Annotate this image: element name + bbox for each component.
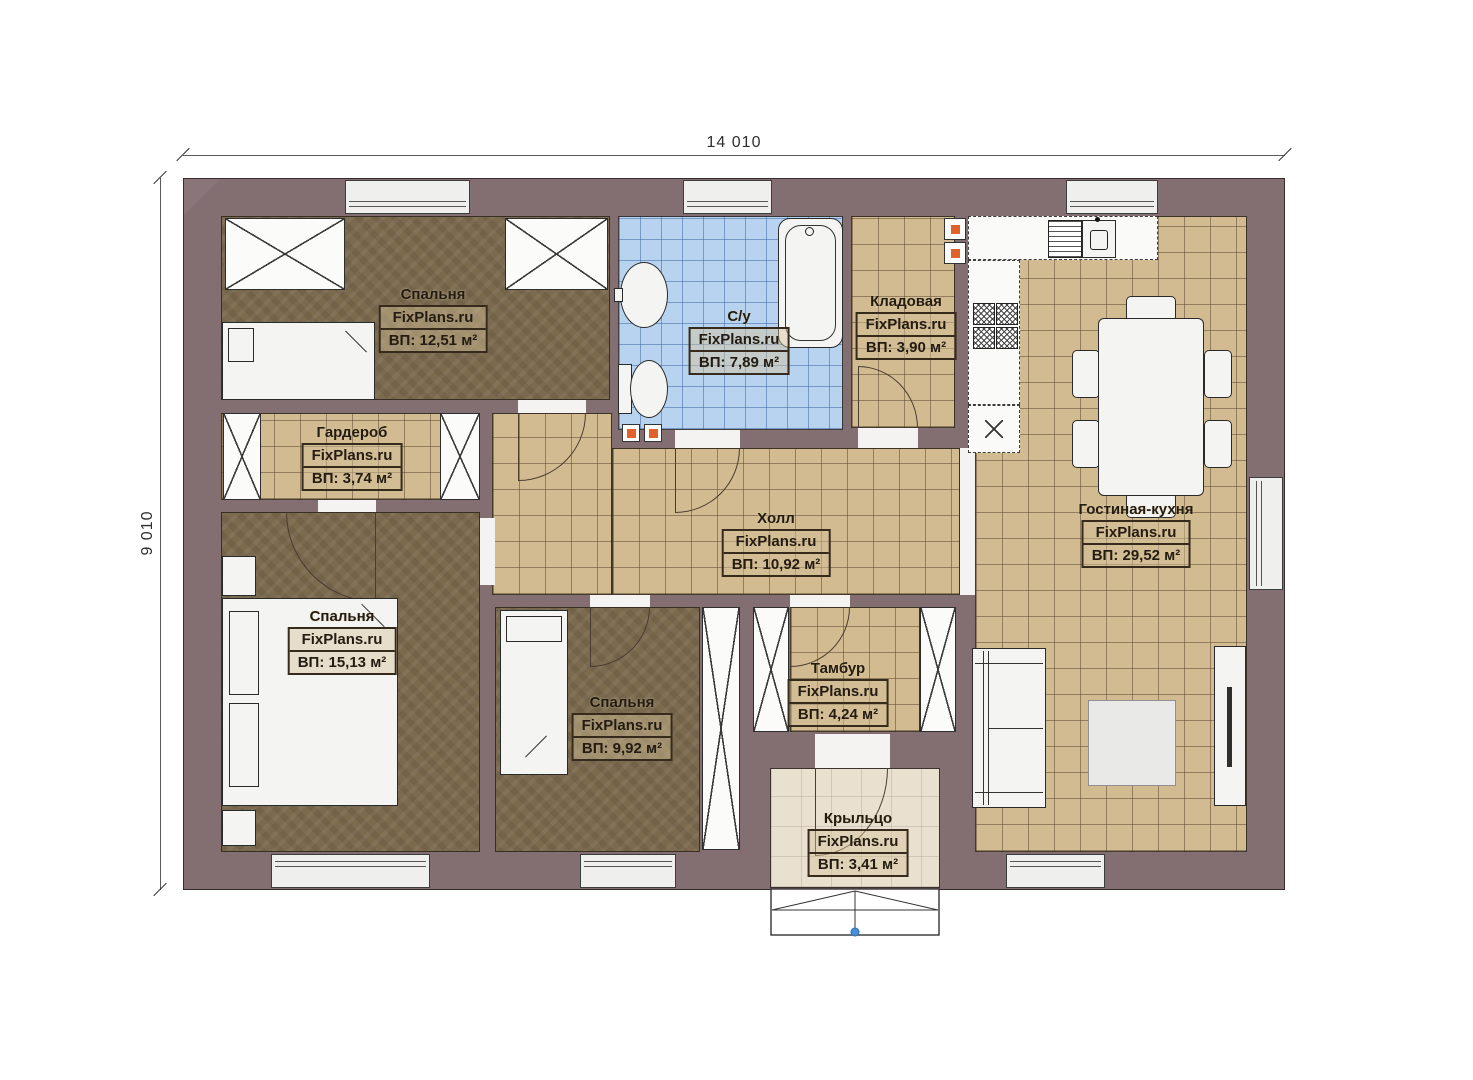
window-sash (1010, 861, 1101, 867)
room-area: ВП: 9,92 м² (574, 738, 671, 759)
room-info-box: FixPlans.ru ВП: 12,51 м² (379, 305, 488, 353)
room-name: Спальня (401, 286, 466, 304)
faucet-icon (1095, 217, 1100, 222)
watermark: FixPlans.ru (810, 831, 907, 854)
bathtub-inner (785, 225, 836, 341)
room-name: Спальня (590, 694, 655, 712)
sofa-cushion-line (989, 728, 1043, 729)
room-info-box: FixPlans.ru ВП: 3,74 м² (302, 443, 403, 491)
window (271, 854, 430, 888)
room-info-box: FixPlans.ru ВП: 4,24 м² (788, 679, 889, 727)
room-area: ВП: 10,92 м² (724, 554, 829, 575)
floor-heating-icon (644, 424, 662, 442)
passage-threshold (960, 448, 975, 595)
sink-bowl (1090, 230, 1108, 250)
wardrobe-symbol (223, 413, 261, 500)
tv-icon (1227, 687, 1232, 767)
chair-symbol (1204, 420, 1232, 468)
rug-symbol (1088, 700, 1176, 786)
step-marker-dot (851, 928, 859, 936)
room-label-hall: Холл FixPlans.ru ВП: 10,92 м² (722, 510, 831, 577)
wardrobe-symbol (505, 218, 608, 290)
stove-burner-icon (996, 327, 1018, 349)
room-name: Холл (757, 510, 795, 528)
door-opening (675, 430, 740, 448)
pillow-symbol (228, 328, 254, 362)
room-info-box: FixPlans.ru ВП: 7,89 м² (689, 327, 790, 375)
single-bed-symbol (222, 322, 375, 400)
sink-symbol (620, 262, 668, 328)
nightstand-symbol (222, 810, 256, 846)
window (1066, 180, 1158, 214)
tv-stand-symbol (1214, 646, 1246, 806)
chair-symbol (1204, 350, 1232, 398)
room-label-wardrobe-room: Гардероб FixPlans.ru ВП: 3,74 м² (302, 424, 403, 491)
floor-plan-canvas: 14 010 9 010 (0, 0, 1473, 1080)
room-area: ВП: 15,13 м² (290, 652, 395, 673)
window (1006, 854, 1105, 888)
watermark: FixPlans.ru (304, 445, 401, 468)
single-bed-symbol (500, 610, 568, 775)
drain-icon (805, 227, 814, 236)
kitchen-counter (968, 260, 1020, 405)
pillow-symbol (229, 703, 259, 787)
stove-burner-icon (973, 303, 995, 325)
door-opening (518, 400, 586, 413)
appliance-symbol (968, 405, 1020, 453)
watermark: FixPlans.ru (790, 681, 887, 704)
window (1249, 477, 1283, 590)
chair-symbol (1072, 350, 1100, 398)
window (580, 854, 676, 888)
window-sash (687, 201, 768, 207)
boiler-icon (944, 242, 966, 264)
room-info-box: FixPlans.ru ВП: 29,52 м² (1082, 520, 1191, 568)
stove-burner-icon (996, 303, 1018, 325)
watermark: FixPlans.ru (574, 715, 671, 738)
door-opening (318, 500, 376, 512)
watermark: FixPlans.ru (381, 307, 486, 330)
dimension-width-label: 14 010 (684, 134, 784, 152)
faucet-icon (614, 288, 623, 302)
room-area: ВП: 4,24 м² (790, 704, 887, 725)
dining-table-symbol (1098, 318, 1204, 496)
room-name: Крыльцо (824, 810, 892, 828)
sofa-symbol (972, 648, 1046, 808)
pillow-symbol (506, 616, 562, 642)
wardrobe-symbol (225, 218, 345, 290)
door-opening (858, 428, 918, 448)
porch-steps (770, 888, 940, 938)
blanket-fold (345, 331, 367, 353)
window-sash (1256, 481, 1262, 586)
room-label-bathroom: С/у FixPlans.ru ВП: 7,89 м² (689, 308, 790, 375)
entry-door-opening (815, 734, 890, 768)
window (683, 180, 772, 214)
watermark: FixPlans.ru (858, 314, 955, 337)
room-name: Гостиная-кухня (1079, 501, 1194, 519)
wardrobe-symbol (920, 607, 956, 732)
room-label-bedroom-top: Спальня FixPlans.ru ВП: 12,51 м² (379, 286, 488, 353)
room-name: С/у (727, 308, 750, 326)
room-label-living-kitchen: Гостиная-кухня FixPlans.ru ВП: 29,52 м² (1079, 501, 1194, 568)
room-label-pantry: Кладовая FixPlans.ru ВП: 3,90 м² (856, 293, 957, 360)
watermark: FixPlans.ru (1084, 522, 1189, 545)
chair-symbol (1072, 420, 1100, 468)
wardrobe-symbol (702, 607, 740, 850)
room-info-box: FixPlans.ru ВП: 10,92 м² (722, 529, 831, 577)
sofa-armrest-line (975, 792, 1043, 793)
window-sash (1070, 201, 1154, 207)
room-info-box: FixPlans.ru ВП: 3,41 м² (808, 829, 909, 877)
pillow-symbol (229, 611, 259, 695)
watermark: FixPlans.ru (724, 531, 829, 554)
room-area: ВП: 7,89 м² (691, 352, 788, 373)
sofa-armrest-line (975, 663, 1043, 664)
floor-heating-icon (622, 424, 640, 442)
room-area: ВП: 3,74 м² (304, 468, 401, 489)
boiler-icon (944, 218, 966, 240)
dimension-line-left (160, 178, 161, 890)
room-label-porch: Крыльцо FixPlans.ru ВП: 3,41 м² (808, 810, 909, 877)
door-opening (590, 595, 650, 607)
window (345, 180, 470, 214)
door-opening (790, 595, 850, 607)
room-area: ВП: 3,41 м² (810, 854, 907, 875)
room-label-bedroom-middle: Спальня FixPlans.ru ВП: 9,92 м² (572, 694, 673, 761)
room-name: Спальня (310, 608, 375, 626)
door-opening (480, 518, 495, 585)
room-name: Гардероб (317, 424, 388, 442)
wardrobe-symbol (440, 413, 480, 500)
toilet-bowl-symbol (630, 360, 668, 418)
room-area: ВП: 3,90 м² (858, 337, 955, 358)
watermark: FixPlans.ru (290, 629, 395, 652)
room-info-box: FixPlans.ru ВП: 9,92 м² (572, 713, 673, 761)
room-info-box: FixPlans.ru ВП: 3,90 м² (856, 312, 957, 360)
room-label-vestibule: Тамбур FixPlans.ru ВП: 4,24 м² (788, 660, 889, 727)
room-info-box: FixPlans.ru ВП: 15,13 м² (288, 627, 397, 675)
dimension-line-top (183, 155, 1285, 156)
blanket-fold (525, 736, 547, 758)
room-area: ВП: 29,52 м² (1084, 545, 1189, 566)
nightstand-symbol (222, 556, 256, 596)
window-sash (275, 861, 426, 867)
stove-burner-icon (973, 327, 995, 349)
x-mark-icon (985, 420, 1003, 438)
room-area: ВП: 12,51 м² (381, 330, 486, 351)
drainboard-symbol (1048, 220, 1082, 258)
window-sash (584, 861, 672, 867)
room-name: Тамбур (811, 660, 865, 678)
room-label-bedroom-left: Спальня FixPlans.ru ВП: 15,13 м² (288, 608, 397, 675)
kitchen-sink-symbol (1082, 220, 1116, 258)
dimension-height-label: 9 010 (139, 503, 157, 563)
window-sash (349, 201, 466, 207)
room-name: Кладовая (870, 293, 942, 311)
wardrobe-symbol (753, 607, 789, 732)
watermark: FixPlans.ru (691, 329, 788, 352)
